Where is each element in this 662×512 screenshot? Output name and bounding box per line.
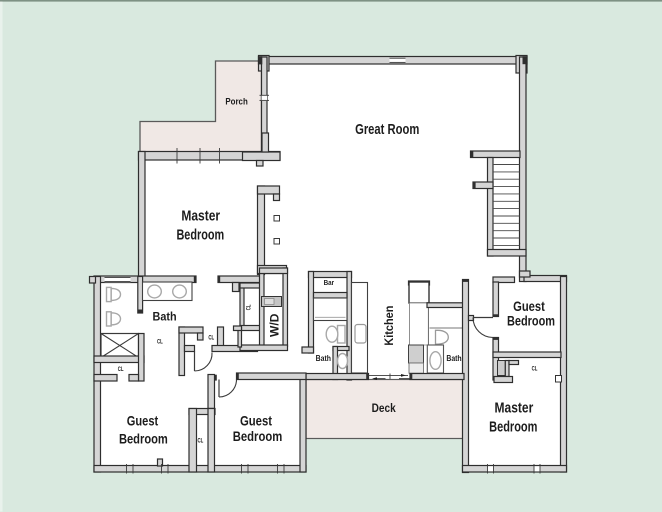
- svg-text:CL: CL: [198, 438, 204, 444]
- svg-text:Deck: Deck: [372, 403, 397, 415]
- svg-text:Porch: Porch: [225, 96, 248, 107]
- svg-text:Kitchen: Kitchen: [382, 306, 396, 346]
- svg-text:Master: Master: [181, 208, 220, 225]
- svg-text:Guest: Guest: [240, 413, 272, 429]
- svg-text:Guest: Guest: [127, 412, 159, 428]
- svg-text:Bath: Bath: [446, 354, 461, 363]
- svg-text:Bar: Bar: [324, 278, 335, 287]
- svg-text:Bath: Bath: [316, 354, 331, 363]
- svg-text:Bedroom: Bedroom: [233, 428, 283, 444]
- svg-text:CL: CL: [157, 340, 163, 346]
- svg-text:CL: CL: [208, 336, 214, 342]
- svg-text:Guest: Guest: [513, 298, 545, 314]
- svg-text:Bedroom: Bedroom: [489, 419, 537, 436]
- svg-text:CL: CL: [118, 367, 124, 373]
- svg-text:Bedroom: Bedroom: [507, 313, 555, 329]
- svg-text:Bath: Bath: [153, 311, 177, 323]
- svg-text:W/D: W/D: [270, 314, 282, 337]
- svg-text:Bedroom: Bedroom: [176, 227, 224, 244]
- svg-text:Great Room: Great Room: [355, 121, 419, 138]
- svg-text:Bedroom: Bedroom: [119, 431, 168, 447]
- svg-text:CL: CL: [247, 304, 253, 310]
- svg-text:CL: CL: [532, 367, 538, 373]
- svg-text:Master: Master: [495, 399, 534, 416]
